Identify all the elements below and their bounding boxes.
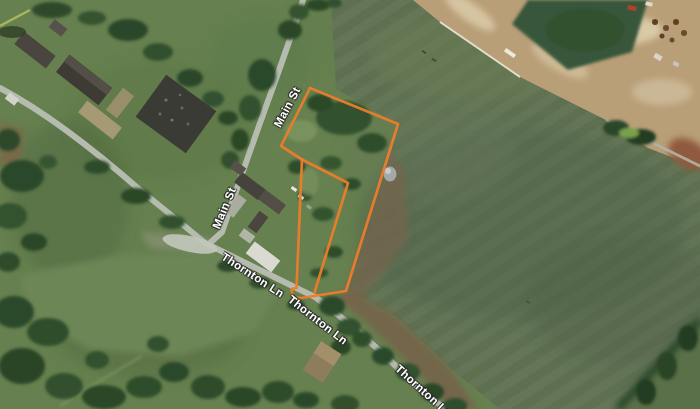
- satellite-imagery: [0, 0, 700, 409]
- satellite-map[interactable]: Main St Main St Thornton Ln Thornton Ln …: [0, 0, 700, 409]
